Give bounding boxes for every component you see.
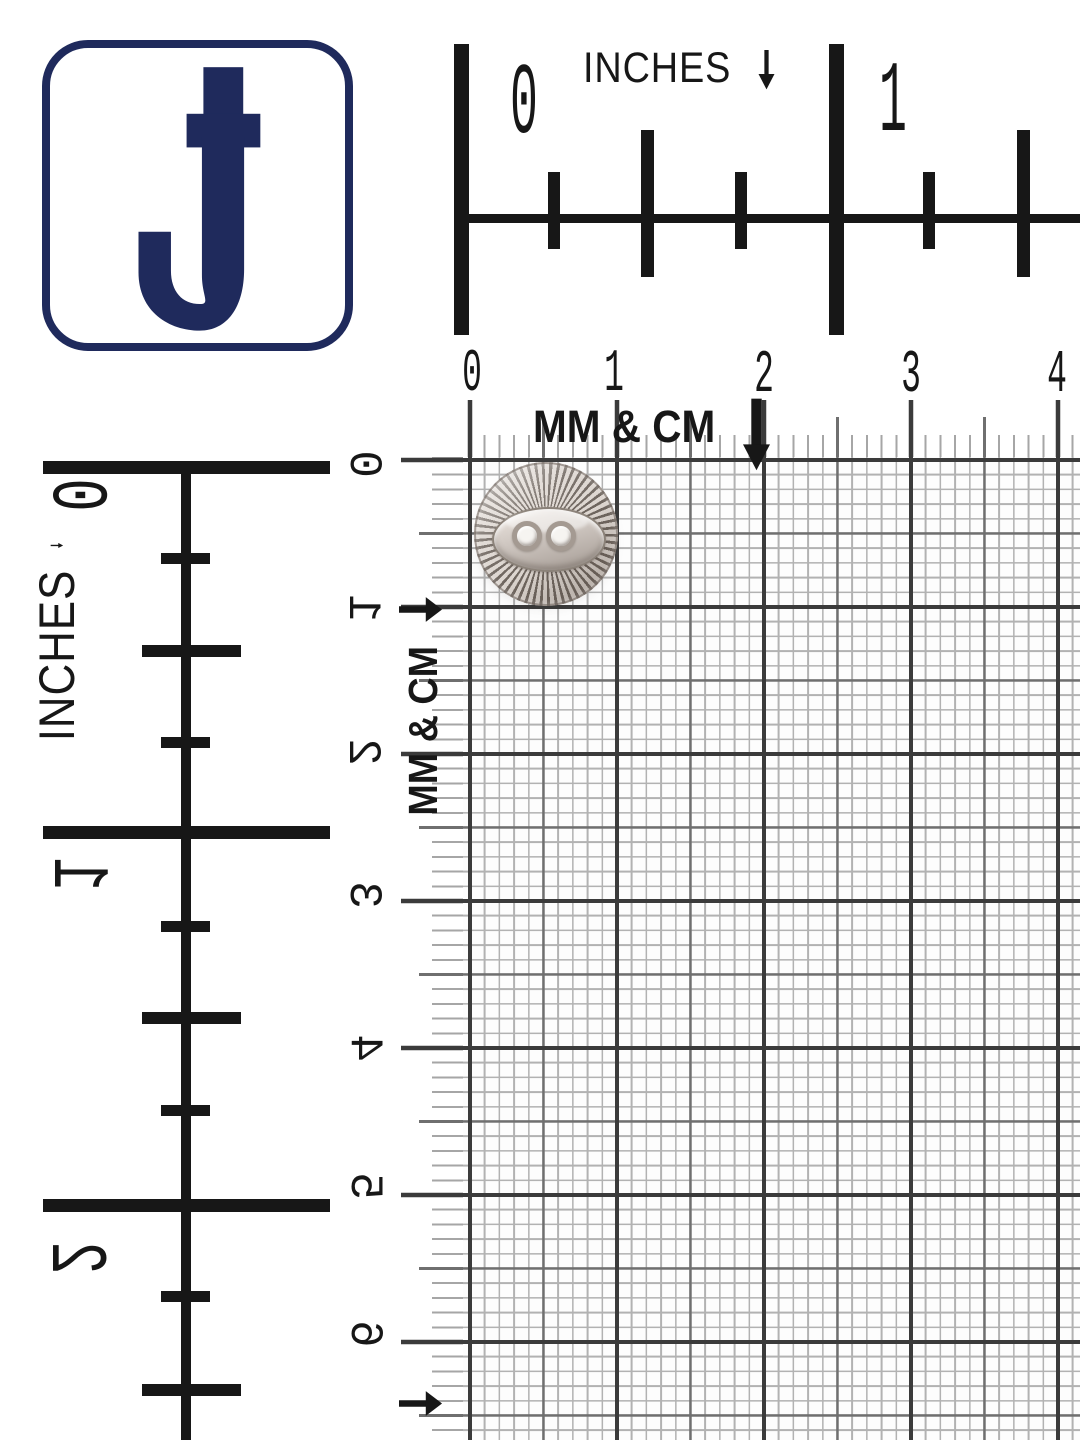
- cm-label-0: 0: [339, 440, 387, 488]
- tick-mark-quarter-inch: [161, 553, 210, 564]
- inches-unit-text: INCHES: [28, 570, 86, 742]
- right-arrow-icon: [399, 1391, 443, 1416]
- tick-mark-half-inch: [641, 130, 654, 277]
- button-hole-right: [546, 521, 576, 551]
- button-hole-left: [512, 521, 542, 551]
- cm-label-6: 6: [340, 1310, 388, 1358]
- tick-mark-half-inch: [142, 645, 241, 657]
- cm-label-3: 3: [339, 871, 387, 919]
- cm-label-4: 4: [340, 1024, 388, 1072]
- tick-mark-1in: [829, 44, 844, 335]
- cm-label-2: 2: [751, 352, 777, 400]
- cm-label-3: 3: [898, 352, 924, 400]
- brand-logo: [42, 40, 353, 351]
- down-arrow-icon: [743, 398, 770, 472]
- tick-mark-quarter-inch: [161, 921, 210, 932]
- product-photo-stage: 0 1 INCHES 0 1 2 3 4 MM & CM 0 1 2: [0, 0, 1080, 1440]
- tick-mark-1in: [43, 826, 330, 839]
- mm-cm-unit-label: MM & CM: [533, 404, 715, 449]
- cm-label-2: 2: [338, 728, 386, 776]
- tick-mark-half-inch: [1017, 130, 1030, 277]
- inch-label-2: 2: [49, 1241, 97, 1275]
- tick-mark-quarter-inch: [548, 172, 560, 249]
- down-arrow-icon: [757, 50, 776, 90]
- tick-mark-2in: [43, 1199, 330, 1212]
- tick-mark-0in: [454, 44, 469, 335]
- tick-mark-half-inch: [142, 1384, 241, 1396]
- tick-mark-quarter-inch: [161, 1291, 210, 1302]
- inches-unit-label: INCHES: [583, 47, 731, 90]
- cm-label-5: 5: [340, 1162, 388, 1210]
- mm-cm-unit-label-rotated: MM & CM: [401, 636, 445, 826]
- inch-label-0: 0: [513, 82, 535, 130]
- tick-mark-0in: [43, 461, 330, 474]
- mm-cm-unit-text: MM & CM: [400, 646, 447, 816]
- cm-label-1: 1: [601, 351, 627, 399]
- right-arrow-icon: [35, 543, 79, 548]
- cm-label-4: 4: [1044, 352, 1070, 400]
- inch-label-0: 0: [50, 478, 98, 512]
- tick-mark-quarter-inch: [735, 172, 747, 249]
- inches-unit-label-rotated: INCHES: [31, 543, 83, 753]
- tick-mark-half-inch: [142, 1012, 241, 1024]
- right-arrow-icon: [399, 597, 443, 622]
- tick-mark-quarter-inch: [161, 737, 210, 748]
- tick-mark-quarter-inch: [923, 172, 935, 249]
- cm-label-1: 1: [338, 584, 386, 632]
- logo-j-cross-mark: [50, 48, 345, 343]
- sewing-button-photo: [462, 452, 632, 624]
- cm-label-0: 0: [459, 351, 485, 399]
- tick-mark-quarter-inch: [161, 1105, 210, 1116]
- inch-label-1: 1: [882, 80, 904, 128]
- inch-label-1: 1: [51, 857, 99, 891]
